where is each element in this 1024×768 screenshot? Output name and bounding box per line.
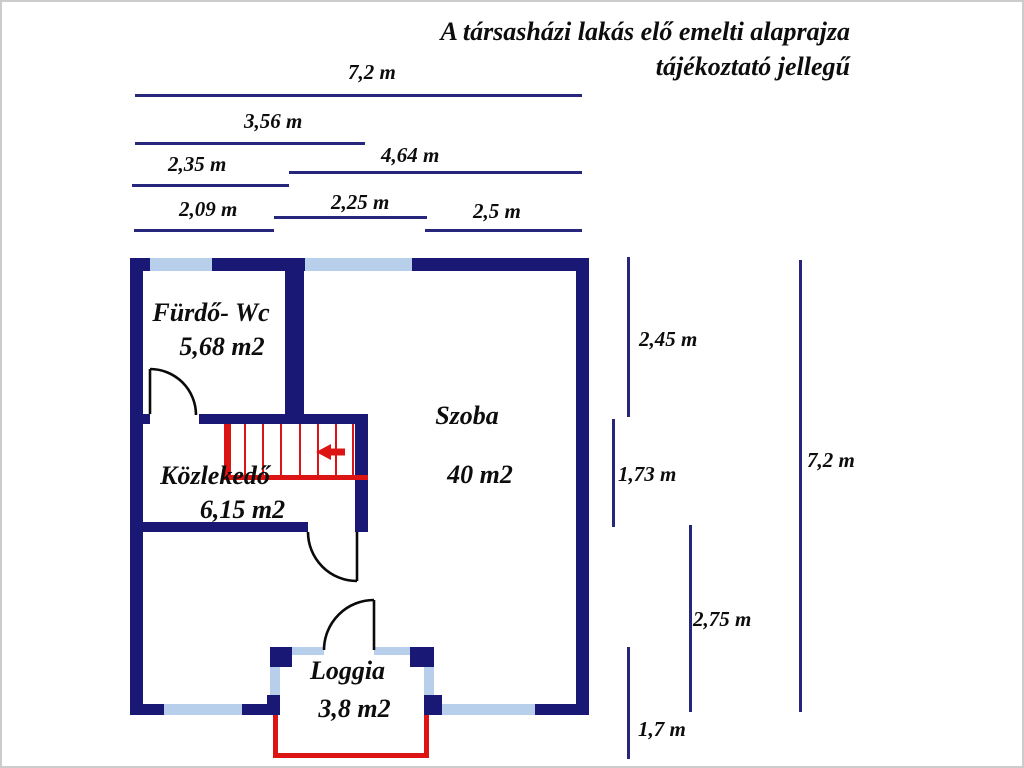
room-label-szoba: Szoba — [407, 401, 527, 431]
furdo-door-arc — [150, 369, 196, 415]
room-label-furdo: Fürdő- Wc — [141, 298, 281, 328]
stairs-direction-arrow-icon — [316, 444, 345, 460]
room-area-furdo: 5,68 m2 — [157, 332, 287, 362]
kozlekedo-door-arc — [308, 532, 357, 581]
doors-overlay — [2, 2, 1024, 768]
room-area-kozlekedo: 6,15 m2 — [180, 495, 305, 525]
room-label-loggia: Loggia — [290, 656, 405, 686]
room-label-kozlekedo: Közlekedő — [145, 461, 285, 491]
loggia-door-arc — [324, 600, 374, 650]
room-area-loggia: 3,8 m2 — [297, 694, 412, 724]
room-area-szoba: 40 m2 — [420, 460, 540, 490]
floor-plan-canvas: A társasházi lakás elő emelti alaprajza … — [0, 0, 1024, 768]
